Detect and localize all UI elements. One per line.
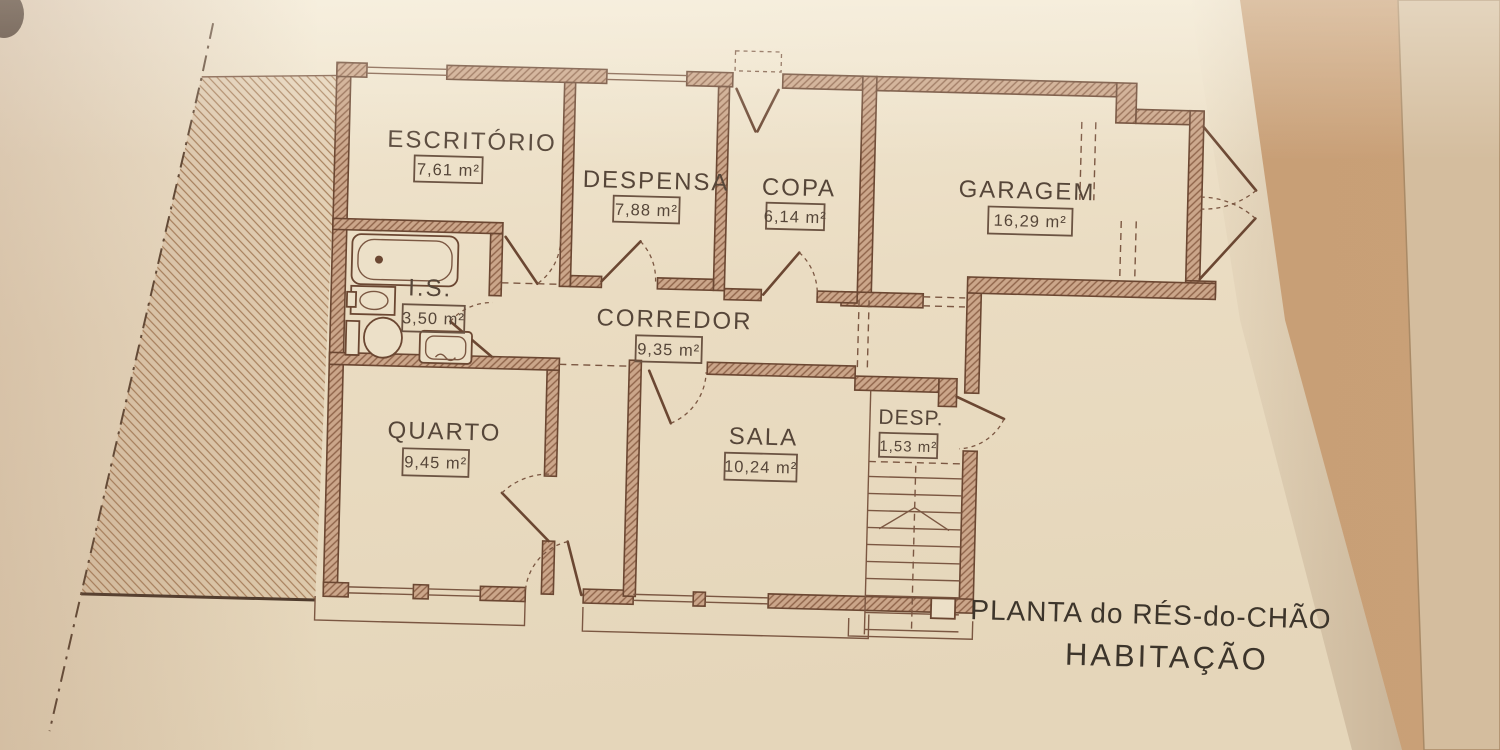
shade-left-overlay (0, 0, 320, 750)
room-area-garagem: 16,29 m² (993, 212, 1067, 232)
room-area-corredor: 9,35 m² (637, 340, 700, 360)
room-area-is: 3,50 m² (402, 309, 465, 329)
floorplan-photo: ESCRITÓRIO 7,61 m² DESPENSA 7,88 m² COPA… (0, 0, 1500, 750)
floorplan-canvas: ESCRITÓRIO 7,61 m² DESPENSA 7,88 m² COPA… (0, 0, 1500, 750)
room-area-escritorio: 7,61 m² (417, 161, 480, 181)
room-area-despensa: 7,88 m² (615, 201, 678, 221)
room-area-sala: 10,24 m² (724, 458, 798, 478)
room-label-quarto: QUARTO (387, 417, 501, 447)
room-label-desp: DESP. (878, 406, 944, 431)
room-label-is: I.S. (408, 274, 453, 302)
toilet-bowl (363, 317, 402, 358)
sink-tap (347, 292, 356, 307)
room-label-sala: SALA (728, 423, 798, 452)
room-label-garagem: GARAGEM (958, 176, 1095, 207)
room-area-copa: 6,14 m² (764, 208, 827, 228)
room-label-corredor: CORREDOR (596, 304, 753, 335)
toilet-tank (345, 321, 359, 355)
room-area-quarto: 9,45 m² (404, 453, 467, 473)
room-label-despensa: DESPENSA (582, 166, 729, 197)
stair-newel (931, 598, 956, 619)
room-label-copa: COPA (762, 174, 837, 203)
plan-title-line2: HABITAÇÃO (1065, 637, 1270, 677)
room-area-desp: 1,53 m² (879, 438, 937, 457)
